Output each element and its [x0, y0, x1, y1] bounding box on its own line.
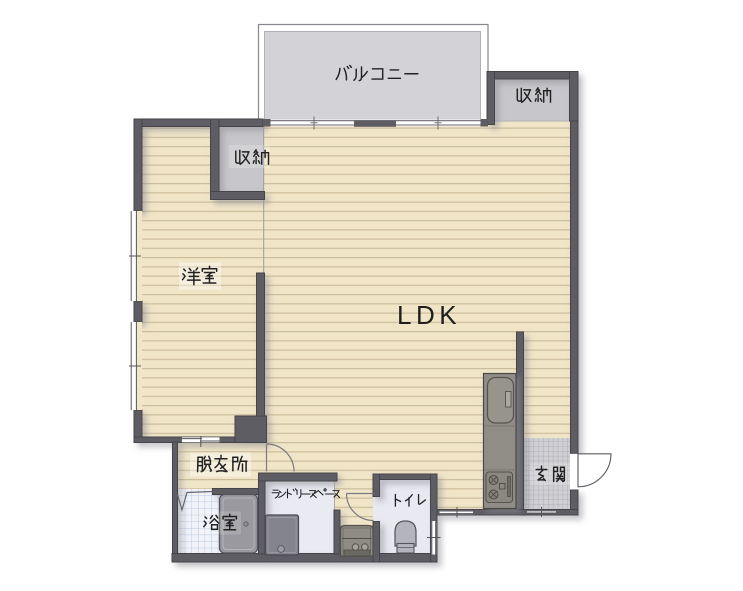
svg-text:LDK: LDK [397, 300, 461, 330]
